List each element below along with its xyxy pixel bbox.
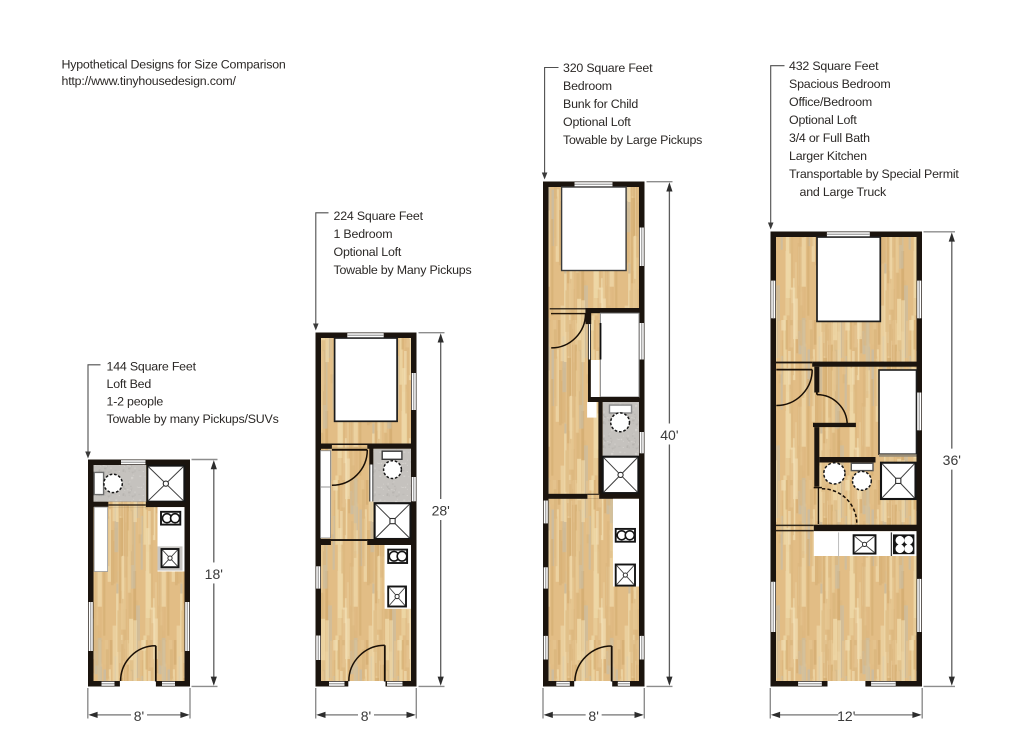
svg-text:Optional Loft: Optional Loft — [789, 113, 857, 127]
svg-text:http://www.tinyhousedesign.com: http://www.tinyhousedesign.com/ — [62, 74, 237, 88]
svg-text:Loft Bed: Loft Bed — [107, 377, 152, 391]
svg-text:320 Square Feet: 320 Square Feet — [563, 61, 653, 75]
svg-text:12': 12' — [837, 708, 855, 724]
svg-text:Towable by Many Pickups: Towable by Many Pickups — [334, 263, 472, 277]
svg-text:Larger Kitchen: Larger Kitchen — [789, 149, 867, 163]
svg-text:Bunk for Child: Bunk for Child — [563, 97, 638, 111]
svg-text:224 Square Feet: 224 Square Feet — [334, 209, 424, 223]
svg-text:1-2 people: 1-2 people — [107, 394, 164, 408]
svg-text:and Large Truck: and Large Truck — [800, 185, 888, 199]
svg-text:432 Square Feet: 432 Square Feet — [789, 59, 879, 73]
svg-text:40': 40' — [660, 427, 678, 443]
svg-text:Towable by Large Pickups: Towable by Large Pickups — [563, 133, 702, 147]
svg-text:Optional Loft: Optional Loft — [563, 115, 631, 129]
svg-text:Optional Loft: Optional Loft — [334, 245, 402, 259]
svg-text:3/4 or Full Bath: 3/4 or Full Bath — [789, 131, 870, 145]
svg-text:Spacious Bedroom: Spacious Bedroom — [789, 77, 891, 91]
svg-text:Hypothetical Designs for Size: Hypothetical Designs for Size Comparison — [62, 58, 286, 72]
svg-text:28': 28' — [432, 503, 450, 519]
svg-text:Office/Bedroom: Office/Bedroom — [789, 95, 872, 109]
svg-text:8': 8' — [361, 708, 371, 724]
svg-text:8': 8' — [134, 708, 144, 724]
svg-text:1 Bedroom: 1 Bedroom — [334, 227, 393, 241]
svg-text:18': 18' — [205, 566, 223, 582]
svg-text:8': 8' — [588, 708, 598, 724]
svg-text:Towable by many Pickups/SUVs: Towable by many Pickups/SUVs — [107, 412, 279, 426]
svg-text:36': 36' — [943, 452, 961, 468]
svg-text:Bedroom: Bedroom — [563, 79, 612, 93]
svg-text:Transportable by Special Permi: Transportable by Special Permit — [789, 167, 959, 181]
svg-text:144 Square Feet: 144 Square Feet — [107, 359, 197, 373]
